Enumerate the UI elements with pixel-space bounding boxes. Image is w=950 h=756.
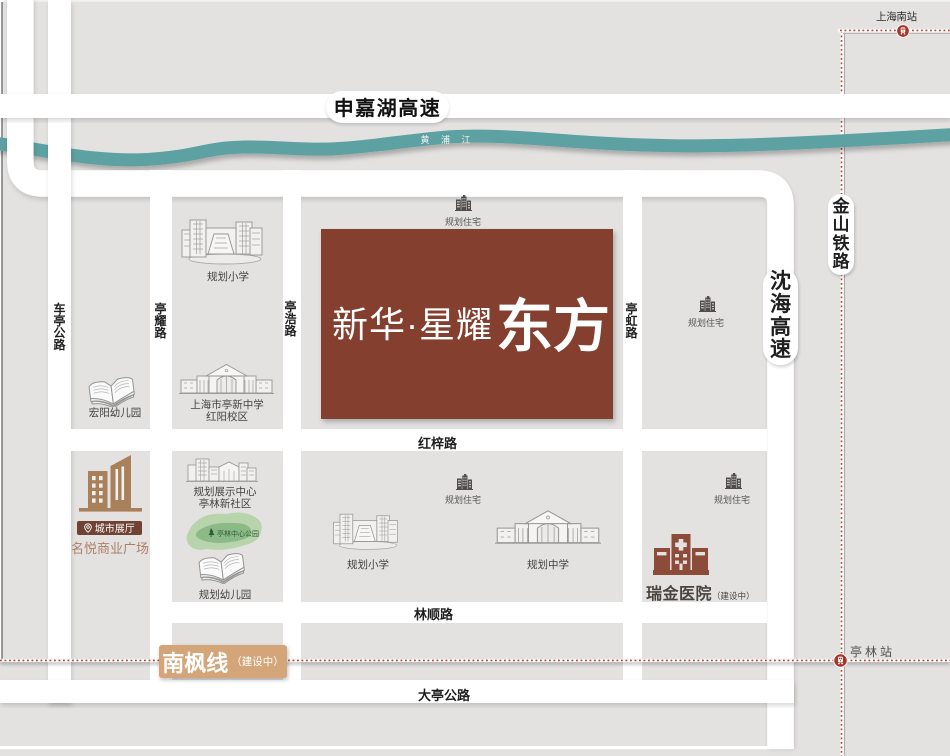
svg-text:亭林中心公园: 亭林中心公园: [217, 529, 259, 538]
